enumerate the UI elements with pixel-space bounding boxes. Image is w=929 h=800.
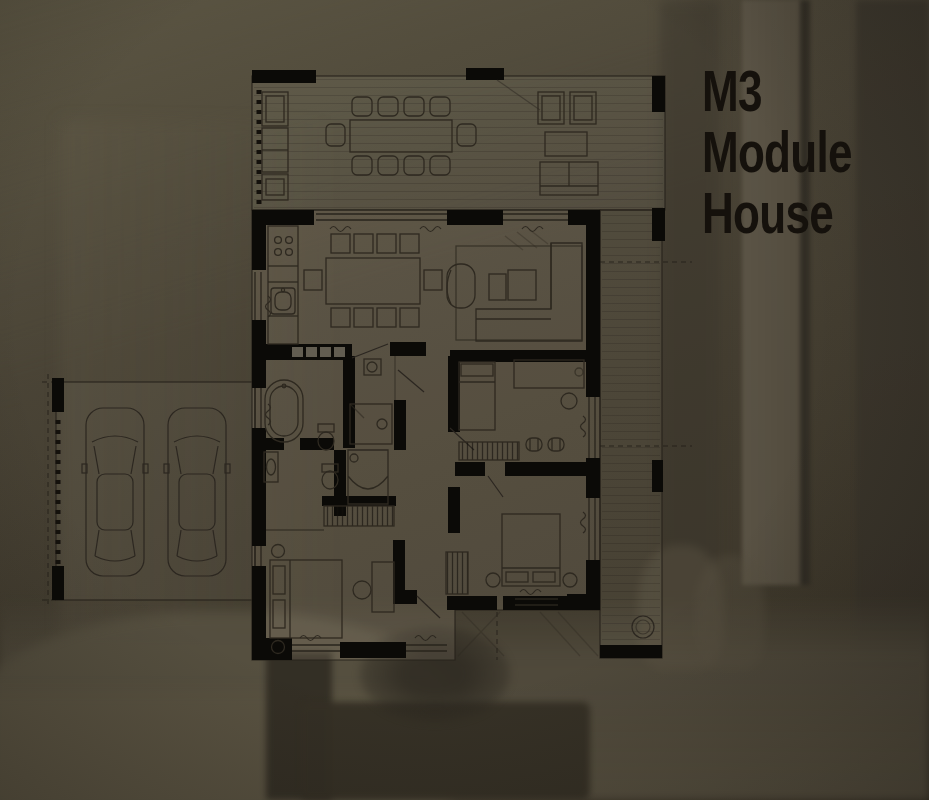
wardrobe — [324, 506, 394, 526]
plan-title-line: M3 — [702, 60, 877, 121]
screenshot-root: M3 Module House — [0, 0, 929, 800]
plan-title: M3 Module House — [702, 60, 877, 243]
plan-title-line: Module — [702, 121, 877, 182]
plan-title-line: House — [702, 182, 877, 243]
wardrobe — [459, 442, 519, 460]
floor-tints — [56, 76, 665, 660]
wardrobe — [446, 552, 468, 594]
